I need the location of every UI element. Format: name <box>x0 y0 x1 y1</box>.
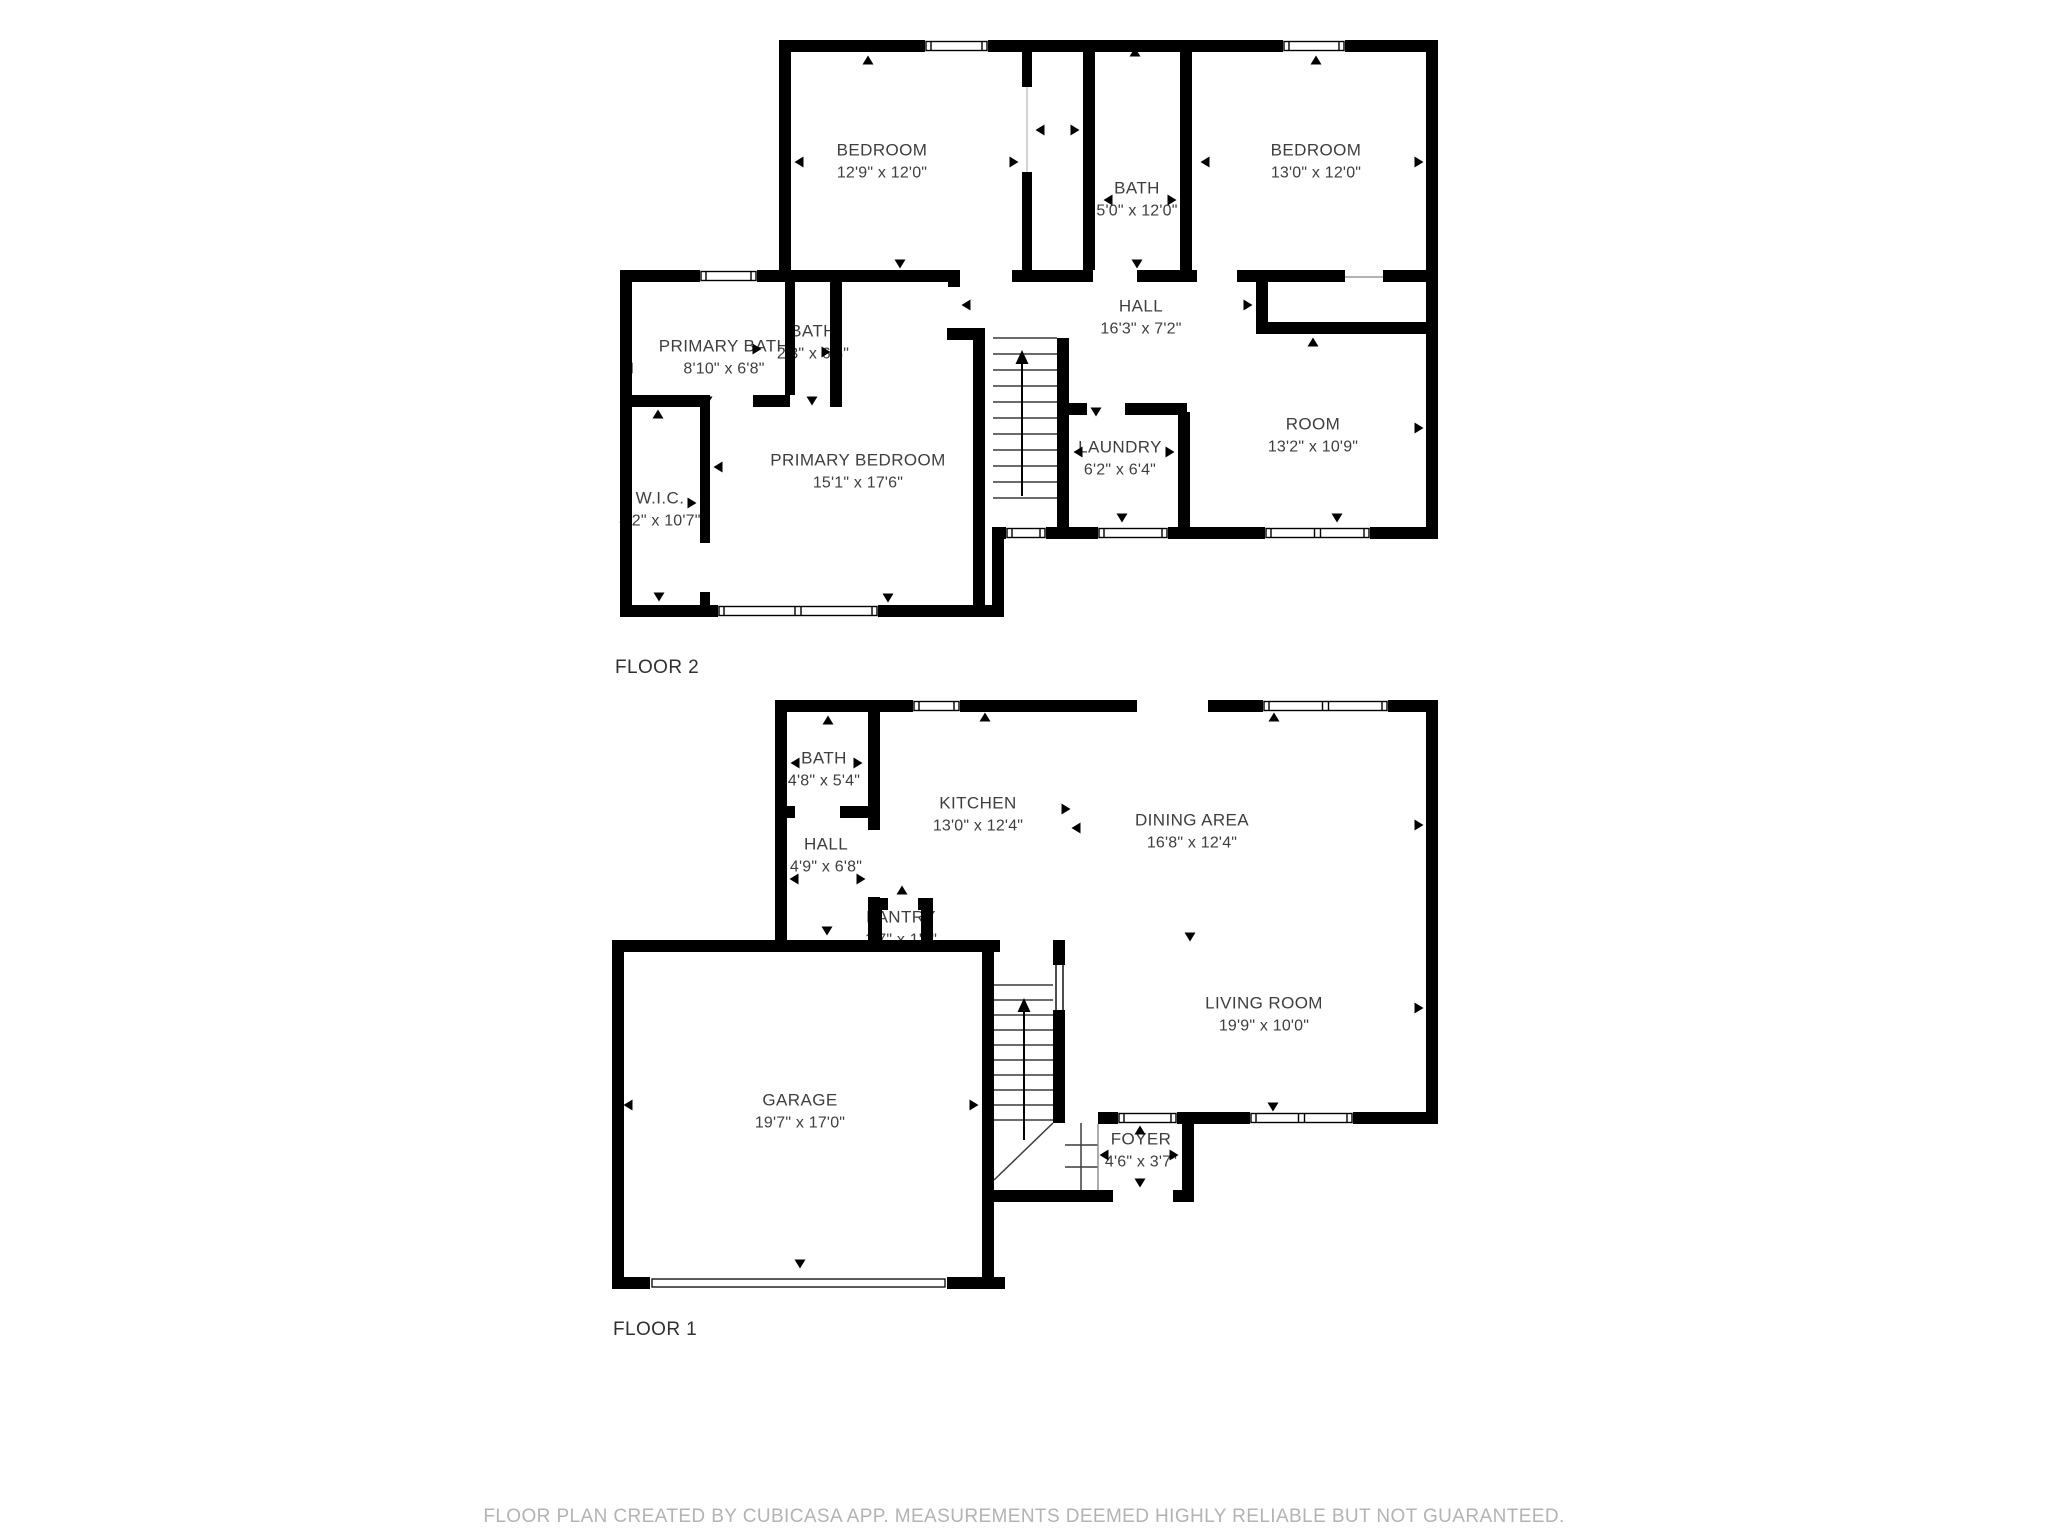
room-label-f1-kitchen: KITCHEN13'0" x 12'4" <box>933 794 1023 837</box>
room-label-f2-bath: BATH5'0" x 12'0" <box>1096 179 1177 222</box>
floor-plan-drawing <box>0 0 2048 1536</box>
room-label-f1-hall: HALL4'9" x 6'8" <box>790 835 862 878</box>
footer-disclaimer: FLOOR PLAN CREATED BY CUBICASA APP. MEAS… <box>0 1506 2048 1528</box>
room-label-f1-bath: BATH4'8" x 5'4" <box>788 749 860 792</box>
floor-plan-page: BEDROOM12'9" x 12'0" BATH5'0" x 12'0" BE… <box>0 0 2048 1536</box>
floor-2-label: FLOOR 2 <box>615 657 699 679</box>
room-label-f1-dining-area: DINING AREA16'8" x 12'4" <box>1135 811 1249 854</box>
room-label-f2-bath-2: BATH2'3" x 6'8" <box>777 322 849 365</box>
room-label-f2-hall: HALL16'3" x 7'2" <box>1100 297 1181 340</box>
room-label-f2-laundry: LAUNDRY6'2" x 6'4" <box>1078 438 1162 481</box>
floor-1-label: FLOOR 1 <box>613 1319 697 1341</box>
room-label-f2-bedroom-2: BEDROOM13'0" x 12'0" <box>1271 141 1362 184</box>
room-label-f1-foyer: FOYER4'6" x 3'7" <box>1105 1130 1177 1173</box>
room-label-f2-wic: W.I.C.4'2" x 10'7" <box>619 489 700 532</box>
room-label-f1-pantry: PANTRY1'7" x 1'8" <box>865 908 937 951</box>
room-label-f1-living-room: LIVING ROOM19'9" x 10'0" <box>1205 994 1323 1037</box>
room-label-f2-primary-bedroom: PRIMARY BEDROOM15'1" x 17'6" <box>770 451 945 494</box>
room-label-f1-garage: GARAGE19'7" x 17'0" <box>755 1091 845 1134</box>
room-label-f2-room: ROOM13'2" x 10'9" <box>1268 415 1358 458</box>
room-label-f2-primary-bath: PRIMARY BATH8'10" x 6'8" <box>659 337 789 380</box>
room-label-f2-bedroom-1: BEDROOM12'9" x 12'0" <box>837 141 928 184</box>
